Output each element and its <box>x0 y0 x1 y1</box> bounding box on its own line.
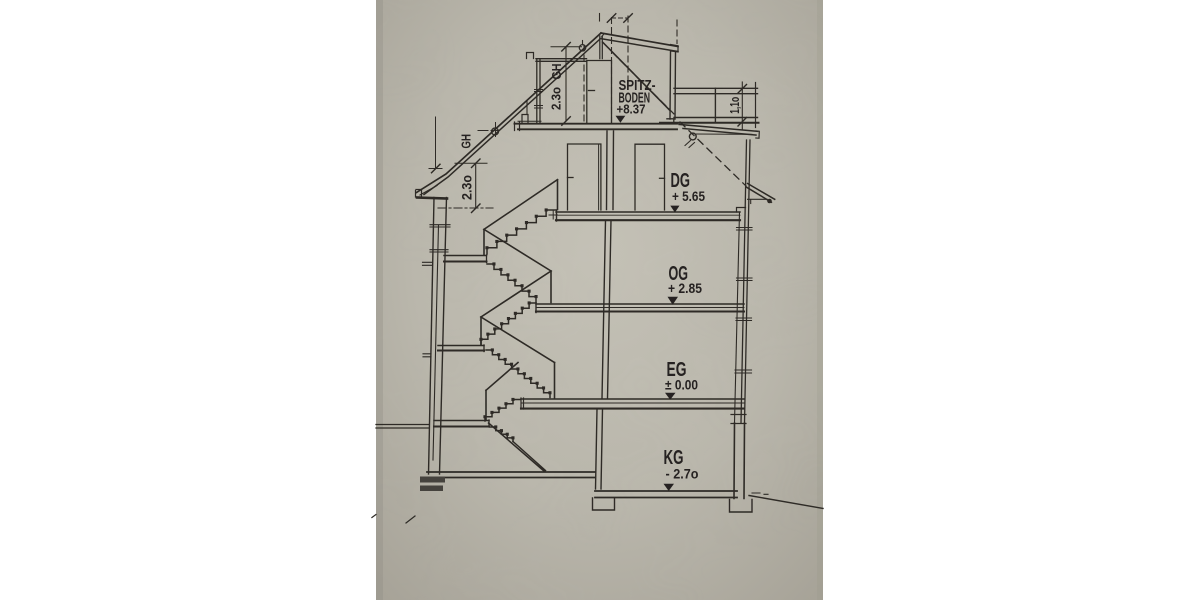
svg-text:KG: KG <box>664 447 684 469</box>
svg-text:+ 5.65: + 5.65 <box>672 189 705 204</box>
svg-text:1,1o: 1,1o <box>728 97 742 114</box>
svg-text:2.3o: 2.3o <box>460 175 475 200</box>
svg-text:GH: GH <box>460 134 474 149</box>
svg-text:GH: GH <box>549 64 564 80</box>
svg-text:± 0.00: ± 0.00 <box>665 378 698 393</box>
svg-text:2.3o: 2.3o <box>549 87 564 110</box>
svg-text:+8.37: +8.37 <box>617 101 646 116</box>
svg-text:+ 2.85: + 2.85 <box>668 281 702 296</box>
svg-text:- 2.7o: - 2.7o <box>666 467 699 482</box>
